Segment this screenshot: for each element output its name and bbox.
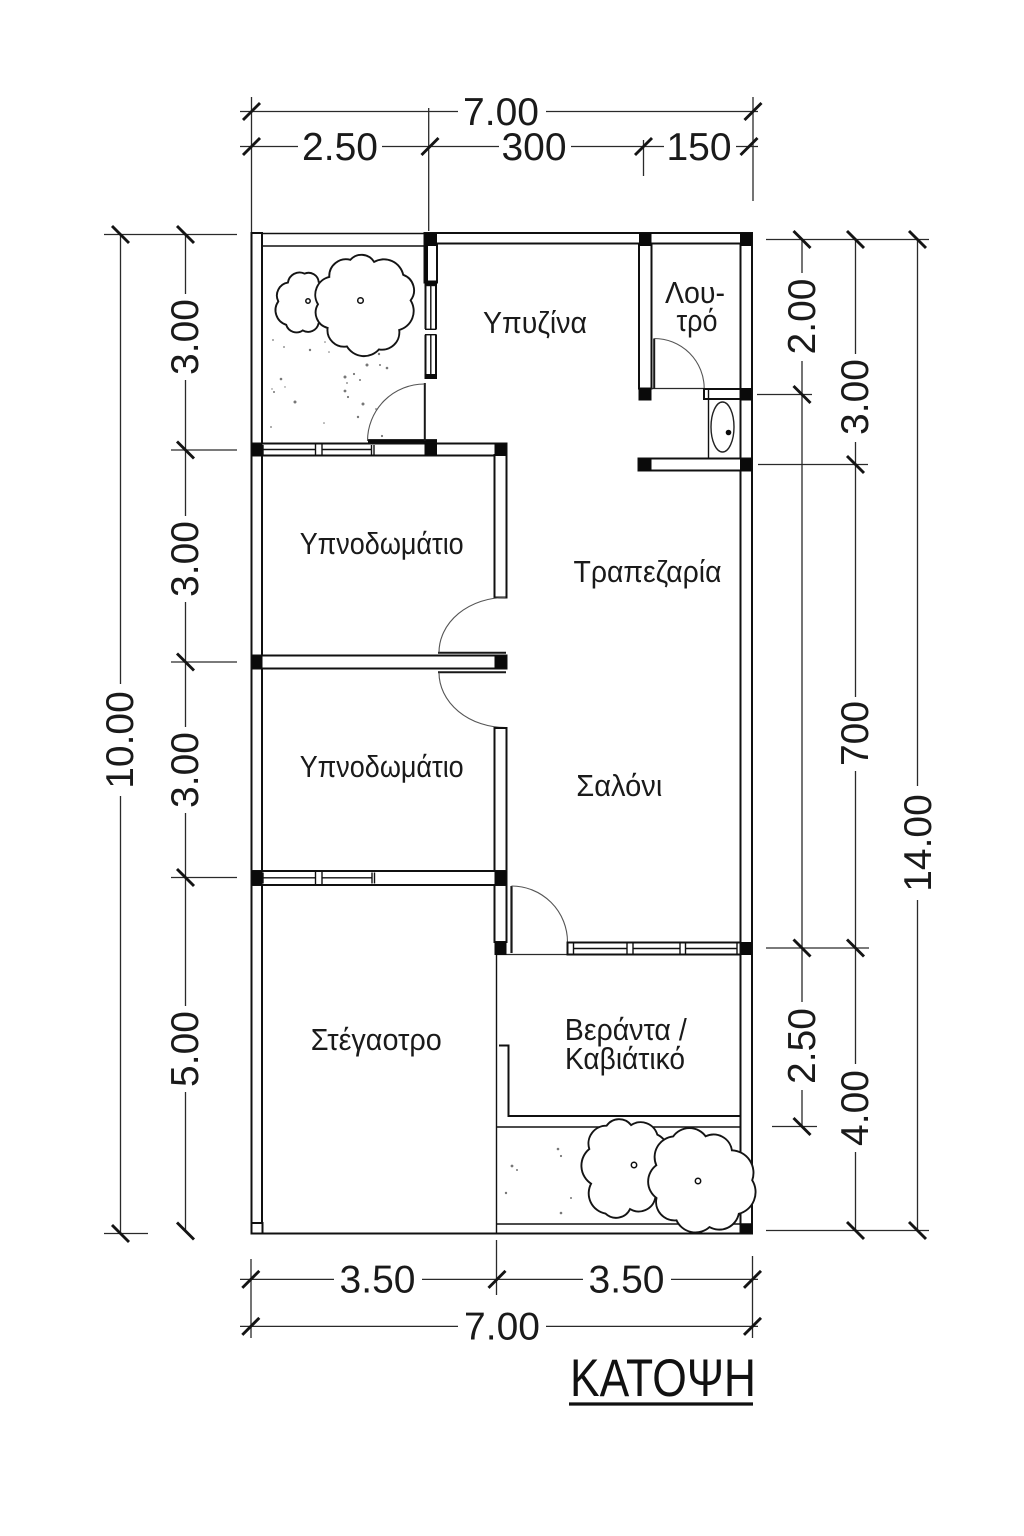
svg-text:14.00: 14.00 <box>897 794 940 892</box>
svg-text:3.50: 3.50 <box>589 1258 665 1301</box>
svg-text:Υπνοδωμάτιο: Υπνοδωμάτιο <box>300 749 464 784</box>
svg-text:150: 150 <box>666 126 731 169</box>
svg-text:3.00: 3.00 <box>164 732 207 808</box>
svg-text:2.50: 2.50 <box>302 126 378 169</box>
svg-text:ΚΑΤΟΨΗ: ΚΑΤΟΨΗ <box>570 1349 756 1408</box>
svg-text:5.00: 5.00 <box>164 1011 207 1087</box>
svg-text:7.00: 7.00 <box>464 1305 540 1348</box>
svg-text:300: 300 <box>501 126 566 169</box>
svg-text:2.50: 2.50 <box>781 1008 824 1084</box>
svg-text:3.50: 3.50 <box>340 1258 416 1301</box>
svg-text:Στέγαοτρο: Στέγαοτρο <box>311 1022 442 1057</box>
svg-text:2.00: 2.00 <box>781 279 824 355</box>
svg-text:4.00: 4.00 <box>834 1070 877 1146</box>
svg-text:Υπνοδωμάτιο: Υπνοδωμάτιο <box>300 526 464 561</box>
svg-text:3.00: 3.00 <box>164 521 207 597</box>
svg-text:τρό: τρό <box>677 303 718 338</box>
svg-text:3.00: 3.00 <box>834 359 877 435</box>
svg-text:3.00: 3.00 <box>164 299 207 375</box>
svg-text:Καβιάτικό: Καβιάτικό <box>565 1041 685 1076</box>
svg-text:10.00: 10.00 <box>99 691 142 789</box>
svg-text:Υπυζίνα: Υπυζίνα <box>483 305 587 340</box>
svg-text:Τραπεζαρία: Τραπεζαρία <box>574 554 722 589</box>
svg-text:Σαλόνι: Σαλόνι <box>576 768 662 803</box>
svg-text:700: 700 <box>834 701 877 766</box>
